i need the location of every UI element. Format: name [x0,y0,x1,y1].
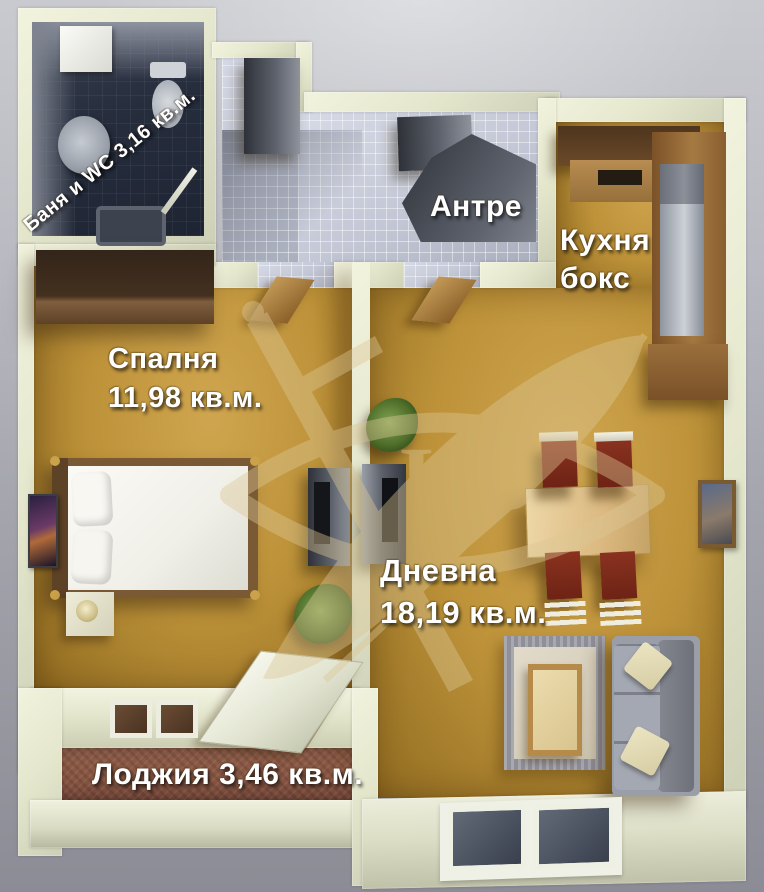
ledge-window-1 [110,700,152,738]
hall-closet [244,58,300,154]
kitchen-label-line2: бокс [560,260,650,298]
bed-knob-tl [50,456,60,466]
hall-label: Антре [430,190,522,224]
loggia-parapet [30,800,362,848]
bedroom-label-name: Спалня [108,340,262,379]
bedroom-wall-picture [28,494,58,568]
living-label-name: Дневна [380,550,546,592]
bedroom-label-area: 11,98 кв.м. [108,379,262,418]
bed-pillow-1 [71,471,114,527]
kitchen-top-wall [545,98,746,122]
kitchen-hob [598,170,642,185]
living-window-2 [534,803,614,870]
wardrobe [36,250,214,324]
loggia-label: Лоджия 3,46 кв.м. [92,758,363,792]
living-label-area: 18,19 кв.м. [380,592,546,634]
living-wall-picture [698,480,736,548]
kitchen-label: Кухня бокс [560,222,650,297]
watermark: НВ [205,280,675,740]
bedroom-label: Спалня 11,98 кв.м. [108,340,262,418]
right-outer-wall [724,98,746,810]
floorplan: НВ Баня и WC 3,16 кв.м. Антре Кухня бокс… [0,0,764,892]
kitchen-label-line1: Кухня [560,222,650,260]
hall-top-wall-b [304,92,560,112]
bedside-lamp [76,600,98,622]
watermark-initials: НВ [400,428,533,530]
bed-knob-bl [50,590,60,600]
hall-kitchen-divider [538,98,556,266]
living-label: Дневна 18,19 кв.м. [380,550,546,634]
bed-pillow-2 [71,529,114,585]
ledge-window-2 [156,700,198,738]
toilet [150,62,186,78]
bathtub [96,206,166,246]
washing-machine [60,26,112,72]
hall-top-wall-a [212,42,308,58]
living-window-1 [448,805,526,872]
